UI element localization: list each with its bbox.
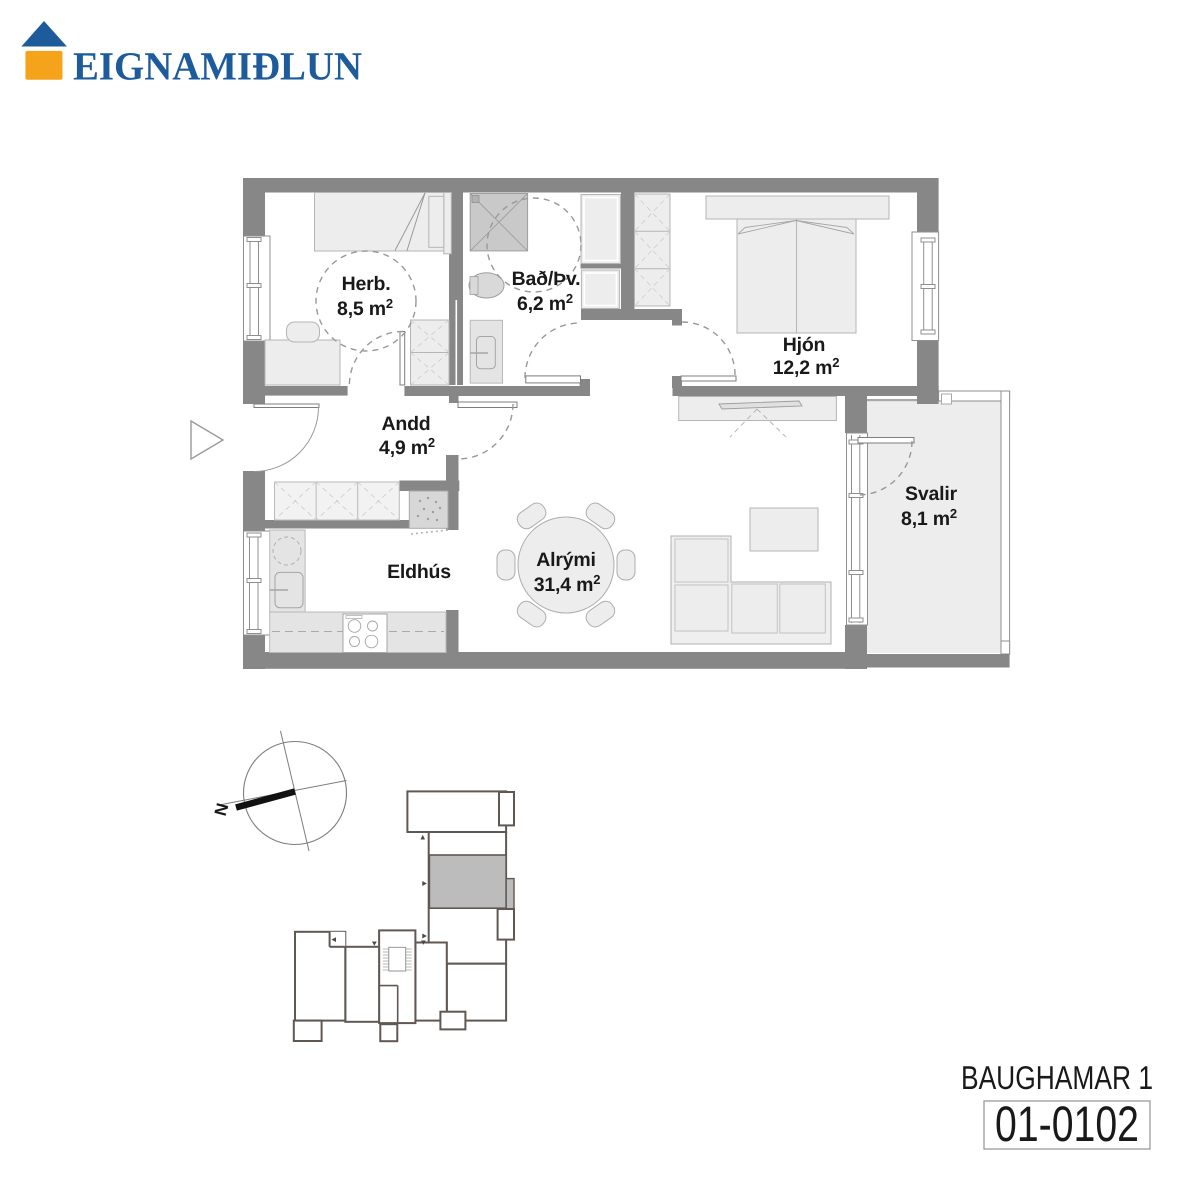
svg-text:8,5 m2: 8,5 m2 bbox=[337, 296, 393, 320]
svg-text:N: N bbox=[211, 801, 233, 818]
svg-text:Alrými: Alrými bbox=[536, 549, 596, 571]
svg-text:EIGNAMIÐLUN: EIGNAMIÐLUN bbox=[73, 44, 362, 89]
svg-text:12,2 m2: 12,2 m2 bbox=[773, 355, 840, 379]
svg-text:Bað/Þv.: Bað/Þv. bbox=[512, 268, 581, 290]
svg-text:4,9 m2: 4,9 m2 bbox=[379, 435, 435, 459]
svg-text:01-0102: 01-0102 bbox=[995, 1096, 1139, 1152]
svg-text:Eldhús: Eldhús bbox=[387, 561, 451, 583]
svg-text:BAUGHAMAR 1: BAUGHAMAR 1 bbox=[961, 1059, 1153, 1096]
svg-text:Andd: Andd bbox=[381, 413, 430, 435]
svg-text:Svalir: Svalir bbox=[905, 483, 958, 505]
svg-text:Herb.: Herb. bbox=[342, 273, 391, 295]
svg-text:8,1 m2: 8,1 m2 bbox=[901, 506, 957, 530]
svg-text:31,4 m2: 31,4 m2 bbox=[534, 572, 601, 596]
svg-text:6,2 m2: 6,2 m2 bbox=[517, 291, 573, 315]
svg-text:Hjón: Hjón bbox=[783, 334, 826, 356]
